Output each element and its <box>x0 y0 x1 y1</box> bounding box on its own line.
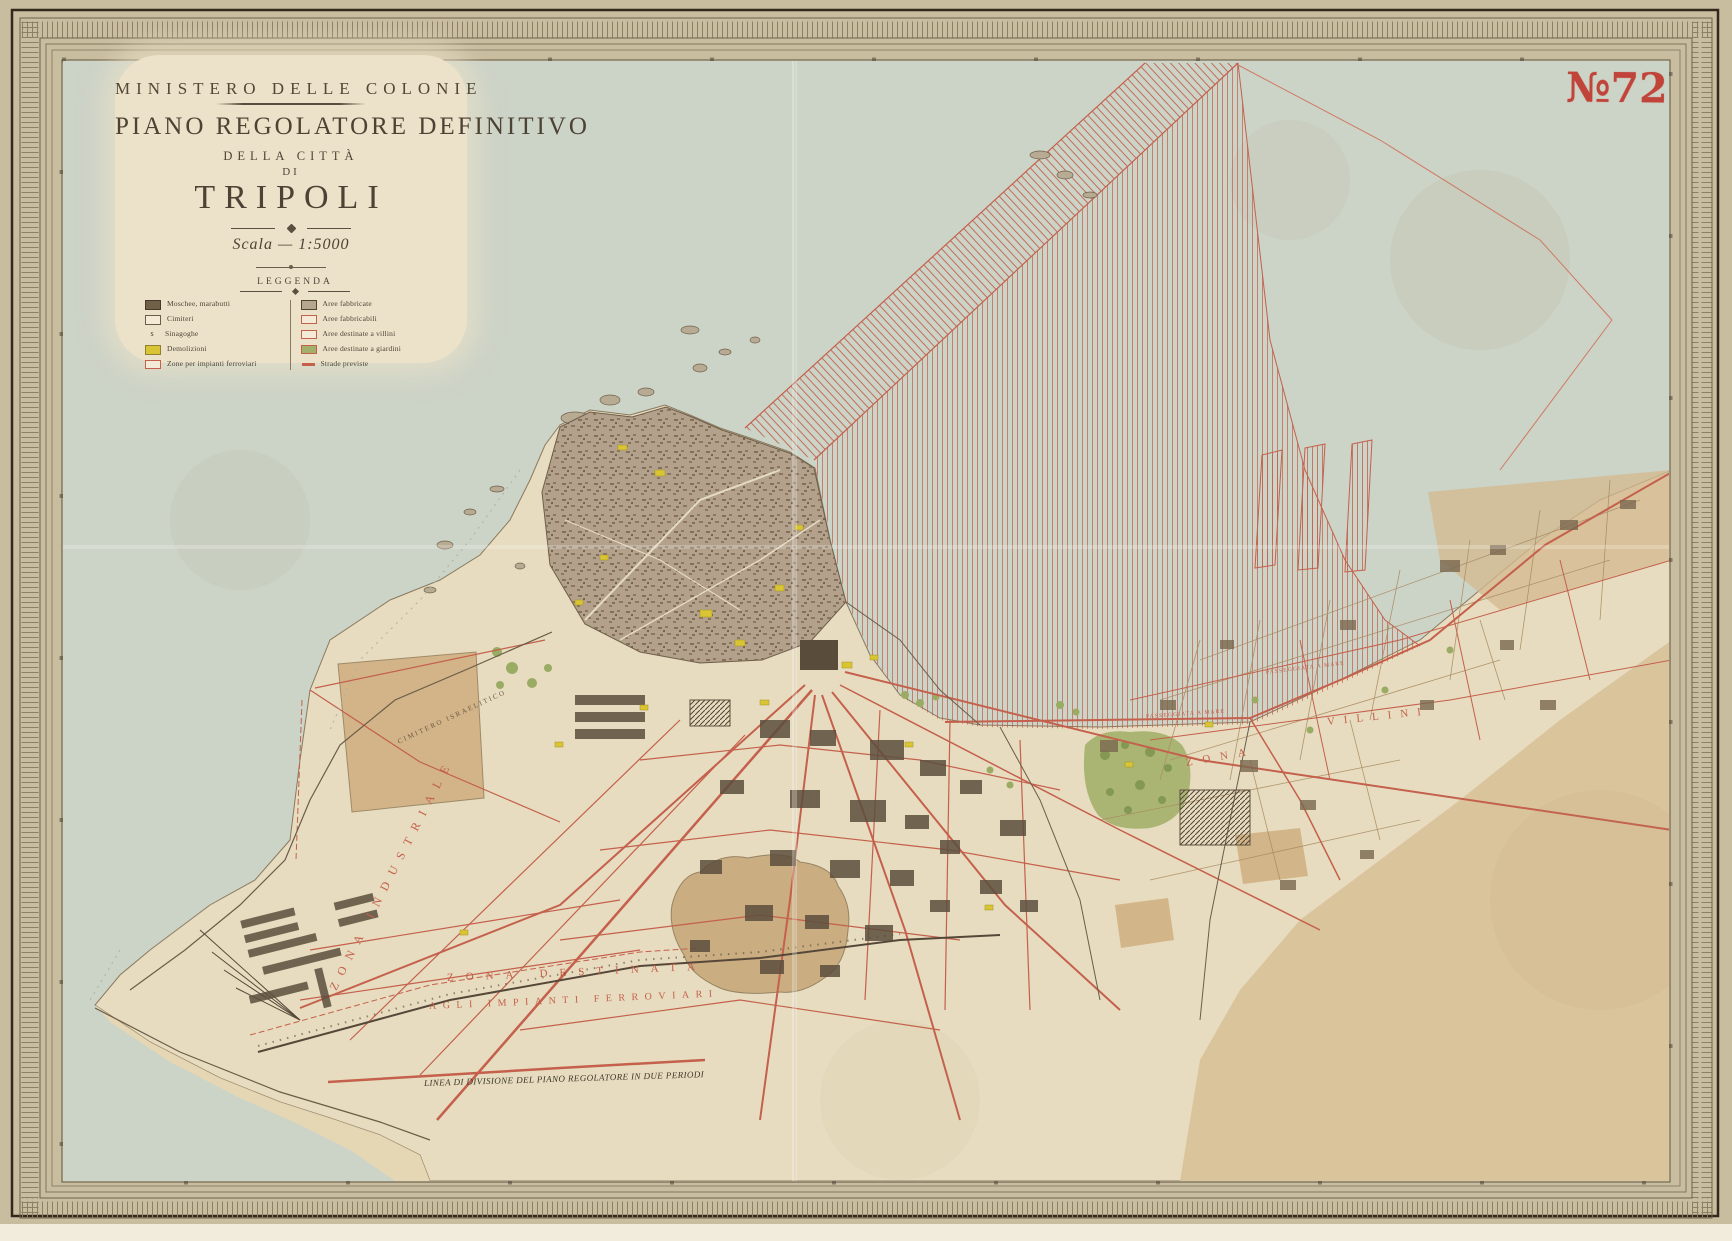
plan-subtitle-di: DI <box>115 166 467 178</box>
legend: LEGGENDA Moschee, marabutti Cimiteri s S… <box>145 277 445 370</box>
legend-label: Aree fabbricate <box>323 300 372 308</box>
legend-item-demolitions: Demolizioni <box>145 345 290 355</box>
legend-label: Aree fabbricabili <box>323 315 377 323</box>
legend-swatch-symbol: s <box>145 330 159 338</box>
legend-label: Sinagoghe <box>165 330 198 338</box>
legend-label: Cimiteri <box>167 315 194 323</box>
scale-divider <box>256 267 326 268</box>
legend-title: LEGGENDA <box>145 277 445 287</box>
legend-swatch-gray <box>301 300 317 310</box>
legend-item-garden-areas: Aree destinate a giardini <box>301 345 446 355</box>
ministry-name: MINISTERO DELLE COLONIE <box>115 79 467 99</box>
legend-title-rule <box>240 289 350 294</box>
legend-swatch-white-outline <box>145 315 161 325</box>
legend-label: Moschee, marabutti <box>167 300 230 308</box>
title-panel: MINISTERO DELLE COLONIE PIANO REGOLATORE… <box>115 55 467 363</box>
legend-item-railway-areas: Zone per impianti ferroviari <box>145 360 290 370</box>
legend-item-planned-streets: Strade previste <box>301 360 446 370</box>
legend-label: Aree destinate a giardini <box>323 345 402 353</box>
legend-item-cemeteries: Cimiteri <box>145 315 290 325</box>
legend-item-built-areas: Aree fabbricate <box>301 300 446 310</box>
title-divider <box>216 103 366 105</box>
legend-item-villa-areas: Aree destinate a villini <box>301 330 446 340</box>
legend-right-column: Aree fabbricate Aree fabbricabili Aree d… <box>290 300 446 370</box>
legend-item-buildable-areas: Aree fabbricabili <box>301 315 446 325</box>
legend-swatch-dark <box>145 300 161 310</box>
legend-item-synagogues: s Sinagoghe <box>145 330 290 340</box>
legend-label: Aree destinate a villini <box>323 330 396 338</box>
legend-swatch-red-line <box>301 360 315 368</box>
legend-label: Strade previste <box>321 360 369 368</box>
scale-label: Scala — 1:5000 <box>115 236 467 254</box>
legend-left-column: Moschee, marabutti Cimiteri s Sinagoghe … <box>145 300 290 370</box>
plan-title: PIANO REGOLATORE DEFINITIVO <box>115 113 467 141</box>
legend-swatch-red-outline <box>301 315 317 324</box>
legend-swatch-red-outline <box>145 360 161 369</box>
city-name: TRIPOLI <box>115 179 467 217</box>
map-sheet: MINISTERO DELLE COLONIE PIANO REGOLATORE… <box>0 0 1732 1241</box>
title-ornament <box>231 225 351 231</box>
legend-label: Demolizioni <box>167 345 207 353</box>
legend-swatch-green <box>301 345 317 354</box>
legend-swatch-red-outline <box>301 330 317 339</box>
plan-subtitle-della-citta: DELLA CITTÀ <box>115 149 467 164</box>
legend-label: Zone per impianti ferroviari <box>167 360 257 368</box>
legend-item-mosques: Moschee, marabutti <box>145 300 290 310</box>
legend-swatch-yellow <box>145 345 161 355</box>
sheet-number-stamp: №72 <box>1566 63 1668 112</box>
